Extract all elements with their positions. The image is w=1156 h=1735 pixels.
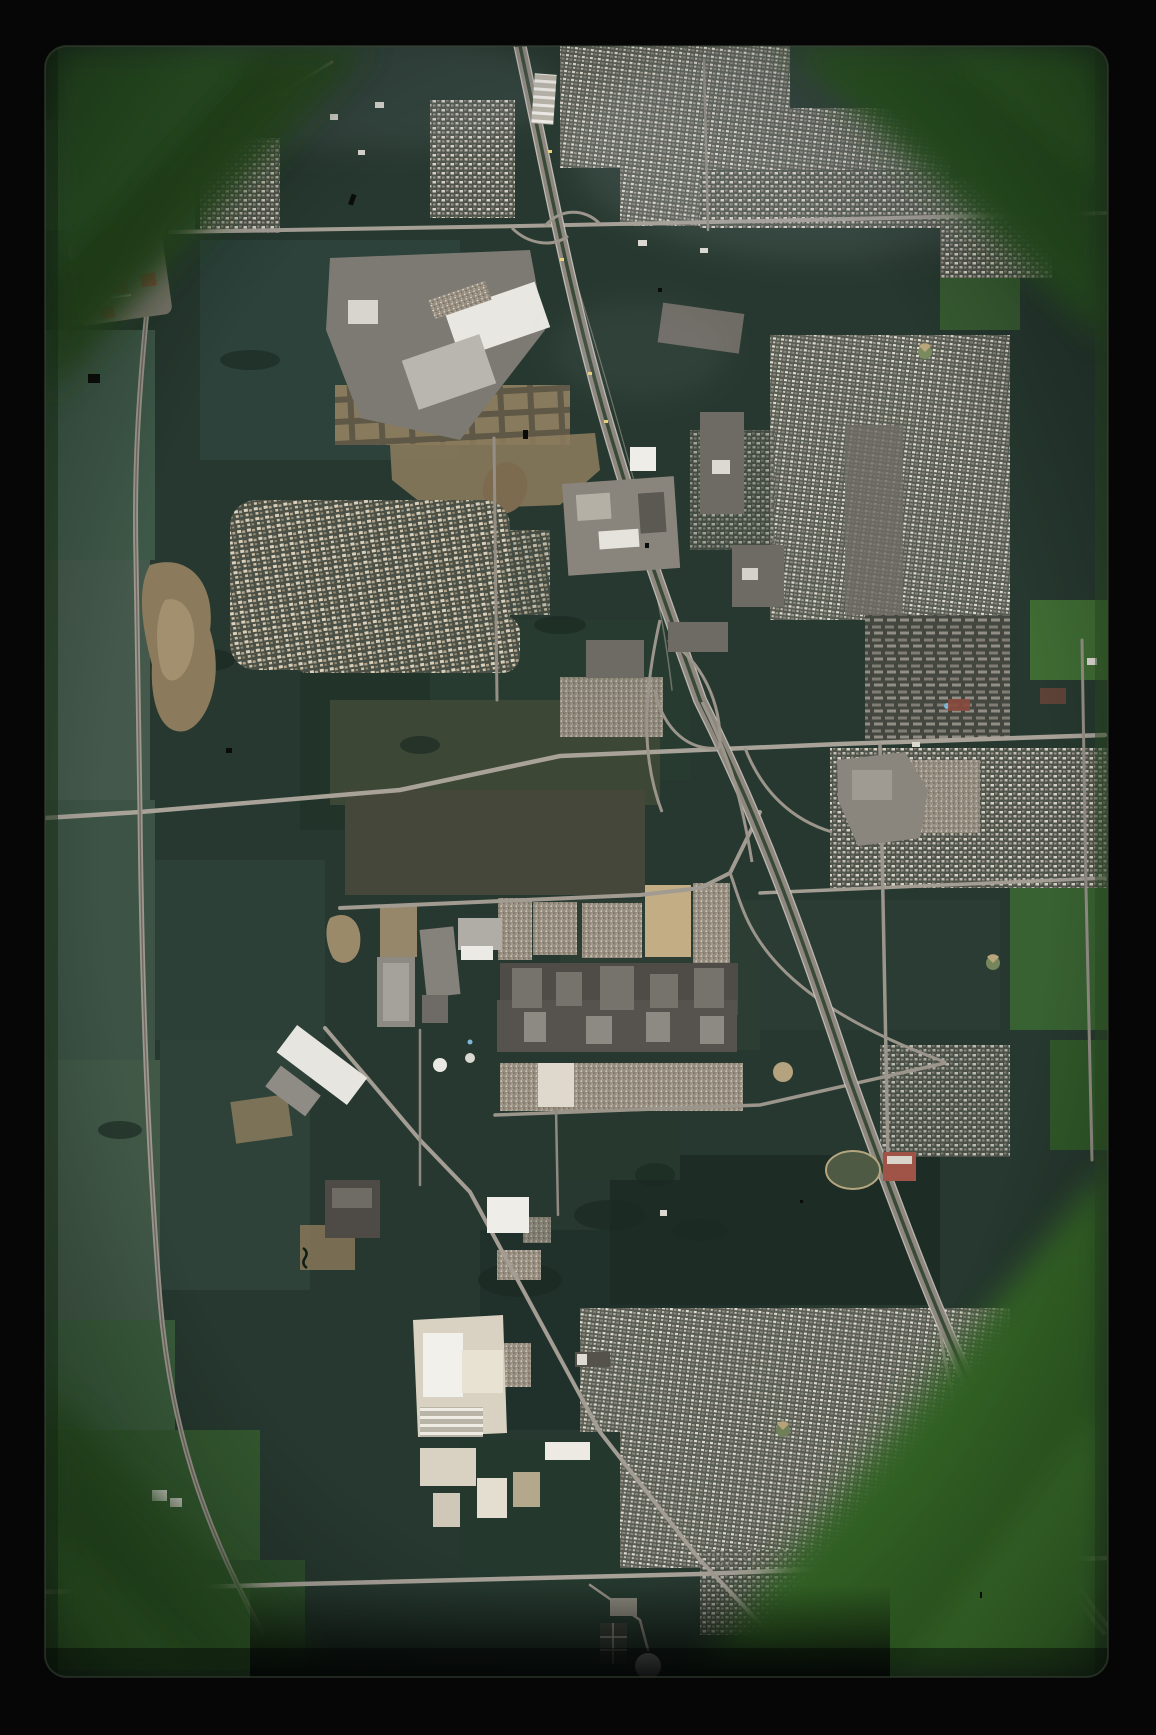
dark-vignette — [45, 46, 1108, 1677]
bottom-edge-shadow — [45, 1648, 1108, 1677]
aerial-photo — [0, 0, 1156, 1735]
slide-scan — [0, 0, 1156, 1735]
